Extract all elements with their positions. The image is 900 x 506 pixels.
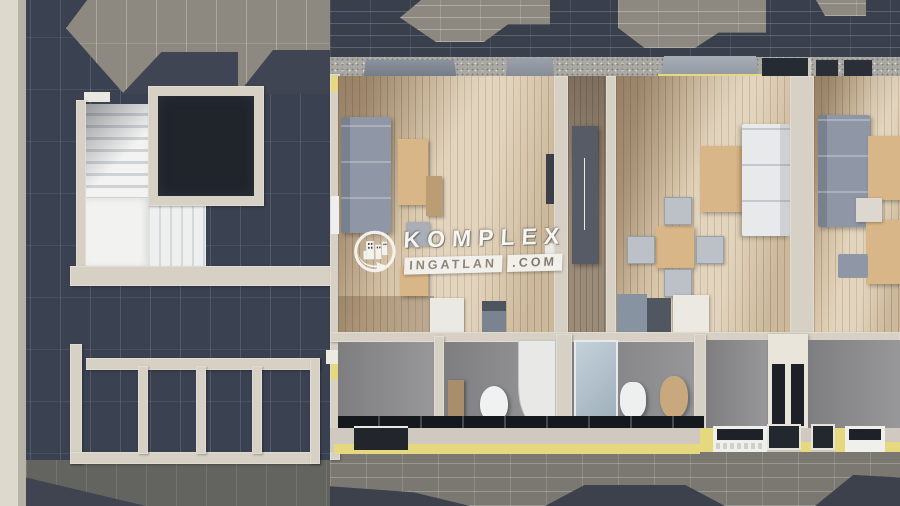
bathroom-1-door [448,380,464,418]
watermark: KOMPLEX INGATLAN.COM [351,218,663,288]
bathroom-2-toilet [660,376,688,418]
bottom-window-frame-2-glass [849,429,881,440]
apartment-3-desk-upper [868,136,900,200]
bottom-window-opening-3 [811,424,835,450]
apartment-2-kitchen-cabinet [673,295,709,334]
watermark-brand-text: KOMPLEX [403,222,567,253]
apartment-2-chair-east [696,236,724,264]
bathroom-2-shower-glass [574,340,618,420]
bottom-pier-yellow-1 [700,428,713,452]
stair-landing [86,198,150,268]
apartment-3-desk-lower [866,220,900,284]
komplex-buildings-arrow-icon [351,229,398,276]
terrace-wall-bottom [70,452,320,464]
terrace-wall-divider-1 [138,366,148,454]
right-room-a-floor [706,340,768,428]
terrace-wall-divider-2 [196,366,206,454]
wall-apartment-1-right [554,76,568,338]
apartment-1-table [398,139,428,205]
apartment-2-sideboard [700,146,746,212]
bottom-window-frame-2 [845,426,885,452]
bathroom-2-sink [620,382,646,418]
bottom-window-frame-1-radiator [716,443,764,449]
wall-apartment-2-left [606,76,616,338]
bottom-pier-yellow-2 [835,428,845,452]
apartment-2-kitchen-unit [617,294,647,334]
watermark-domain-row: INGATLAN.COM [404,253,562,275]
terrace-wall-divider-3 [252,366,262,454]
apartment-2-chair-north [664,197,692,225]
terrace-wall-left [70,344,82,464]
apartment-3-ottoman [838,254,868,278]
column-window-slot-left [772,364,785,426]
bottom-window-frame-1-glass [717,429,763,440]
bottom-window-opening-1 [354,426,408,450]
wall-cap-1 [84,92,110,102]
right-room-b-floor [808,340,900,428]
bottom-window-frame-1 [713,426,767,452]
apartment-2-sofa [742,124,790,236]
floor-plan-render: KOMPLEX INGATLAN.COM [0,0,900,506]
apartment-1-wood-chair [426,176,442,216]
apartment-1-stove [482,301,506,334]
terrace-wall-divider-4 [310,358,320,464]
apartment-1-left-door-panel [331,196,339,234]
apartment-1-kitchen-cabinet [430,298,464,334]
stairwell-wall-left [76,100,86,284]
left-facade-wall [0,0,26,506]
bottom-pier-beige-1 [801,428,811,452]
bathroom-1-shower-tray [518,340,556,424]
entry-terrace-floor [338,342,434,426]
column-window-slot-right [791,364,804,426]
apartment-2-fridge [647,298,671,334]
apartment-1-sofa [341,117,391,233]
wall-apartment-2-right [790,76,814,338]
stairwell-wall-bottom [70,266,334,286]
watermark-site-tld: .COM [507,254,562,272]
lift-shaft-void [158,96,254,196]
bottom-window-opening-2 [767,424,801,450]
stair-landing-panels [150,198,206,268]
apartment-3-chair [856,198,882,222]
apartment-2-chair-south [664,269,692,297]
bottom-pier-beige-2 [885,428,900,452]
watermark-site-name: INGATLAN [404,255,502,275]
